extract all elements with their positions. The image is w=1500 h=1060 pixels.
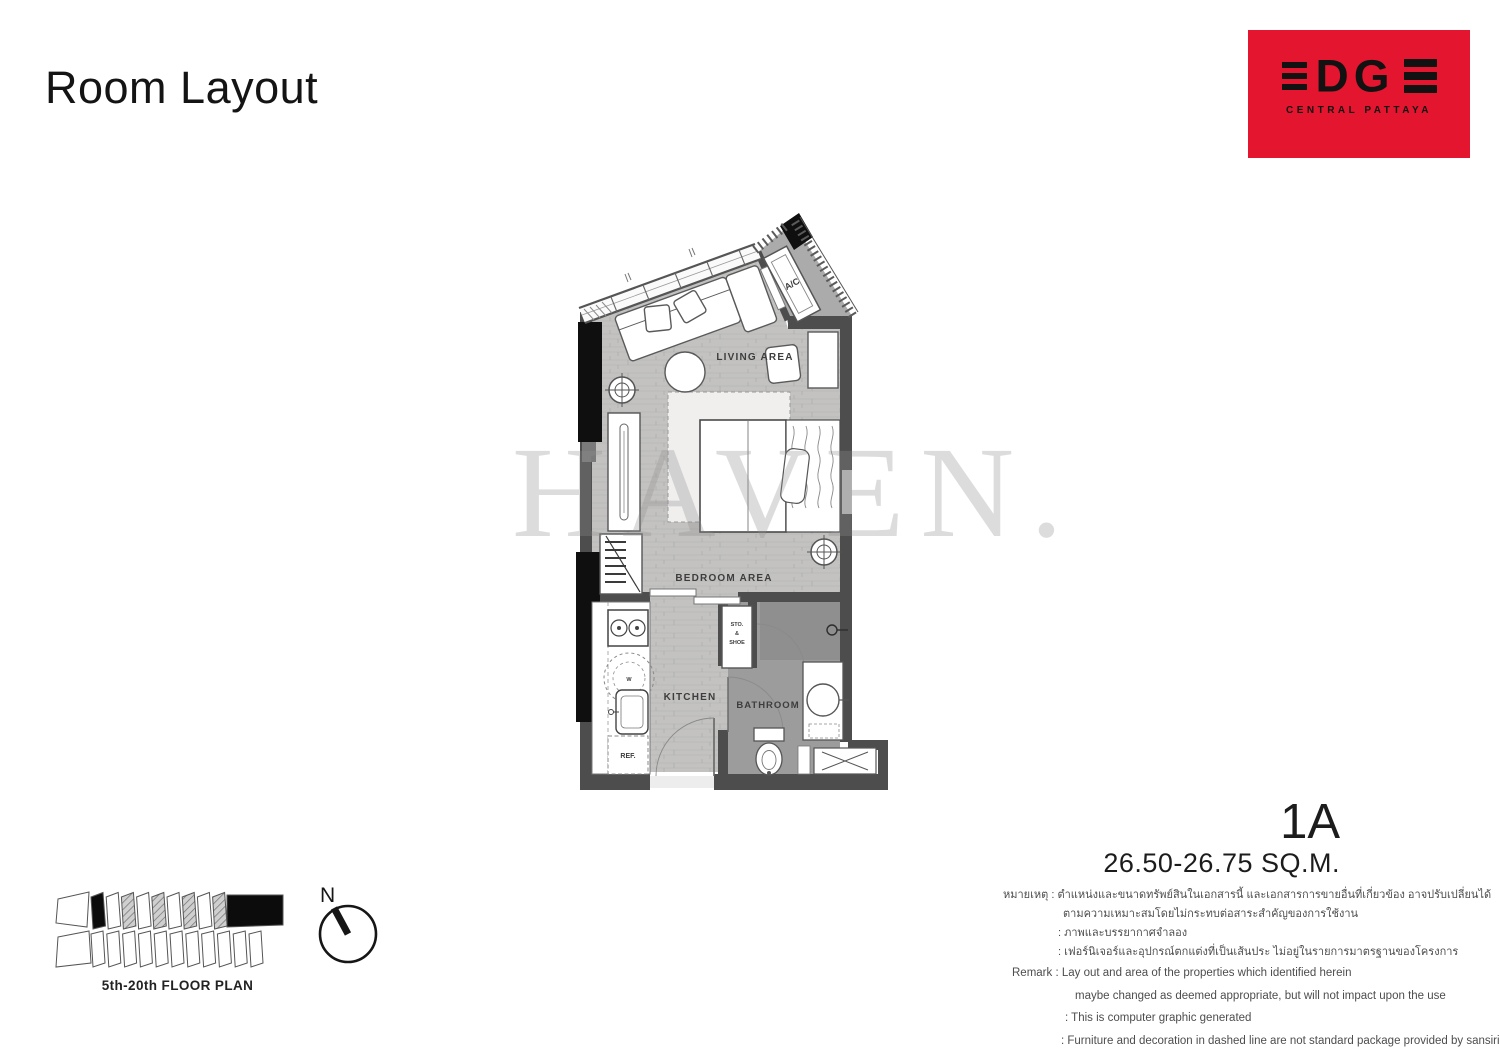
kitchen-counter: W REF. [592,602,654,774]
floor-plan: A/C LIVING AREA [552,200,922,810]
shower-tray [798,746,876,774]
sto-label-2: & [735,631,739,637]
ottoman [765,344,801,384]
unit-name: 1A [1080,796,1340,848]
brand-logo: DG CENTRAL PATTAYA [1248,30,1470,158]
remark-en-line3: : This is computer graphic generated [1065,1007,1482,1030]
room-label-kitchen: KITCHEN [664,692,717,703]
unit-area: 26.50-26.75 SQ.M. [1080,848,1340,878]
key-plan-units [56,892,283,967]
room-layout-page: Room Layout DG CENTRAL PATTAYA [0,0,1500,1060]
storage-closet: STO. & SHOE [722,606,752,668]
stove [608,610,648,646]
remark-en-label: Remark : [1012,967,1059,979]
remark-en-line2: maybe changed as deemed appropriate, but… [1075,985,1482,1008]
key-plan [55,885,290,975]
refrigerator: REF. [608,736,648,774]
edge-letters: DG [1316,56,1395,95]
remark-thai-line2: ตามความเหมาะสมโดยไม่กระทบต่อสาระสำคัญของ… [1063,905,1463,924]
unit-block: 1A 26.50-26.75 SQ.M. [1080,796,1340,878]
north-label: N [320,884,335,907]
room-label-living: LIVING AREA [716,352,793,363]
compass: N [308,876,392,968]
remark-thai: หมายเหตุ : ตำแหน่งและขนาดทรัพย์สินในเอกส… [1003,886,1463,962]
key-plan-caption: 5th-20th FLOOR PLAN [60,978,295,993]
sto-label-3: SHOE [729,640,745,646]
wall-niche [842,470,852,514]
remark-thai-label: หมายเหตุ : [1003,889,1054,901]
room-label-bathroom: BATHROOM [736,700,799,711]
edge-e-left-icon [1282,62,1307,90]
remark-thai-line1: ตำแหน่งและขนาดทรัพย์สินในเอกสารนี้ และเอ… [1057,889,1491,901]
logo-subtitle: CENTRAL PATTAYA [1248,105,1470,116]
remark-thai-line4: : เฟอร์นิเจอร์และอุปกรณ์ตกแต่งที่เป็นเส้… [1058,943,1463,962]
remark-en-line4: : Furniture and decoration in dashed lin… [1061,1030,1482,1053]
remark-en-line1: Lay out and area of the properties which… [1062,967,1352,979]
compass-needle-icon [334,908,348,934]
ref-label: REF. [620,753,635,760]
wardrobe [608,413,640,531]
room-label-bedroom: BEDROOM AREA [675,573,772,584]
sto-label-1: STO. [731,622,744,628]
washer-label: W [626,677,632,683]
toilet [754,728,784,775]
tv-console [808,332,838,388]
vanity-sink [803,662,849,740]
page-title: Room Layout [45,62,318,114]
remark-thai-line3: : ภาพและบรรยากาศจำลอง [1058,924,1463,943]
edge-wordmark: DG [1248,56,1470,96]
bed [700,420,840,532]
edge-e-right-icon [1404,59,1437,93]
shoe-shelf [600,534,642,594]
column-stub [582,442,596,462]
remark-english: Remark : Lay out and area of the propert… [1012,962,1482,1052]
round-table [665,352,705,392]
